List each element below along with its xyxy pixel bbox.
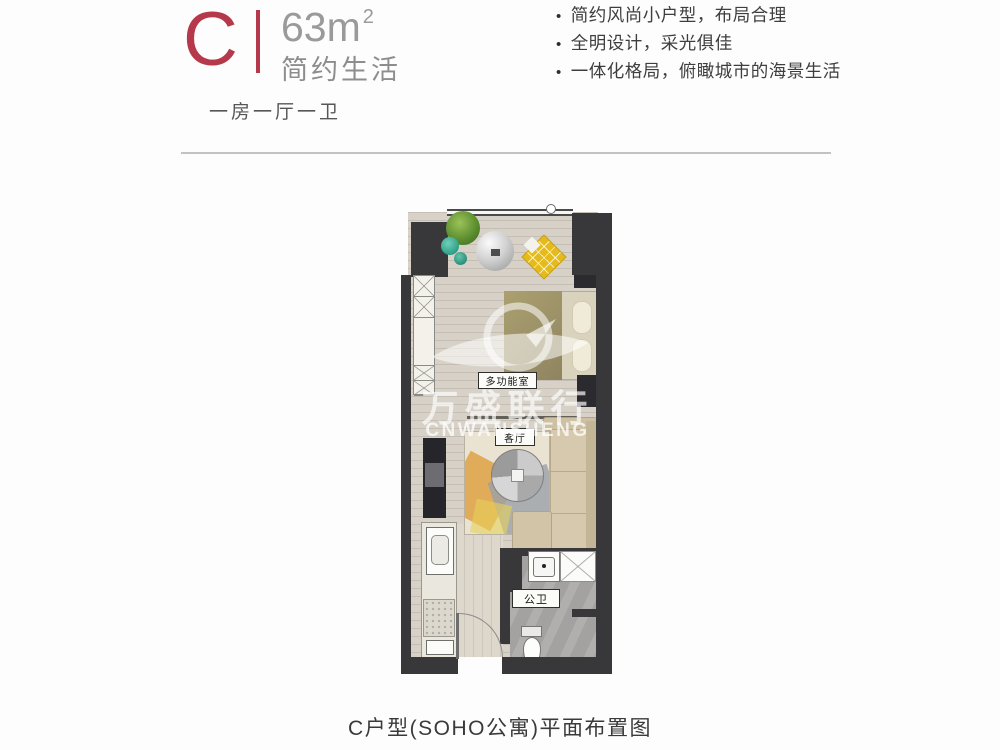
feature-item: 全明设计，采光俱佳 [556, 30, 841, 58]
label-text: 公卫 [524, 591, 548, 607]
kitchen-stone-counter [423, 599, 455, 637]
accent-divider-bar [256, 10, 260, 73]
side-table-center [491, 249, 500, 256]
watermark-en: CNWANSHENG [400, 420, 615, 442]
watermark-logo-icon [430, 295, 590, 383]
plumbing-marker-icon [546, 204, 556, 214]
feature-item: 简约风尚小户型，布局合理 [556, 2, 841, 30]
door-arc-curve [459, 613, 503, 658]
kitchen-appliance [426, 640, 454, 655]
cabinet-x-cell [414, 276, 434, 297]
sofa-chaise [512, 511, 552, 551]
layout-spec: 一房一厅一卫 [209, 97, 341, 124]
tagline: 简约生活 [281, 48, 401, 87]
kitchen-sink-basin [431, 535, 449, 565]
wall-left [401, 275, 411, 659]
door-leaf [456, 613, 459, 659]
wall-right [596, 273, 612, 659]
unit-letter: C [183, 0, 238, 83]
rug-pattern [470, 499, 512, 535]
area-number: 63m [281, 4, 361, 50]
plant-pot [454, 252, 467, 265]
section-divider [181, 152, 831, 154]
feature-list: 简约风尚小户型，布局合理 全明设计，采光俱佳 一体化格局，俯瞰城市的海景生活 [556, 2, 841, 86]
area-value: 63m2 [281, 4, 374, 51]
entry-door-opening [458, 657, 502, 674]
wall-top-right-block [572, 213, 612, 275]
label-bathroom: 公卫 [512, 589, 560, 608]
feature-item: 一体化格局，俯瞰城市的海景生活 [556, 58, 841, 86]
wall-bath-left-block [500, 548, 522, 592]
shower-mat [560, 551, 596, 582]
toilet-tank [521, 626, 542, 637]
area-superscript: 2 [363, 6, 374, 28]
plan-caption: C户型(SOHO公寓)平面布置图 [0, 712, 1000, 742]
floor-plan: 多功能室 客厅 公卫 万盛联行 CNWANSHENG [400, 209, 615, 691]
coffee-table-tray [511, 469, 524, 482]
vanity-faucet [542, 564, 546, 568]
wall-bottom [401, 657, 612, 674]
entry-door-arc [459, 613, 503, 658]
wall-bath-right-stub [572, 609, 598, 617]
tv-cabinet-shelf [425, 463, 444, 487]
